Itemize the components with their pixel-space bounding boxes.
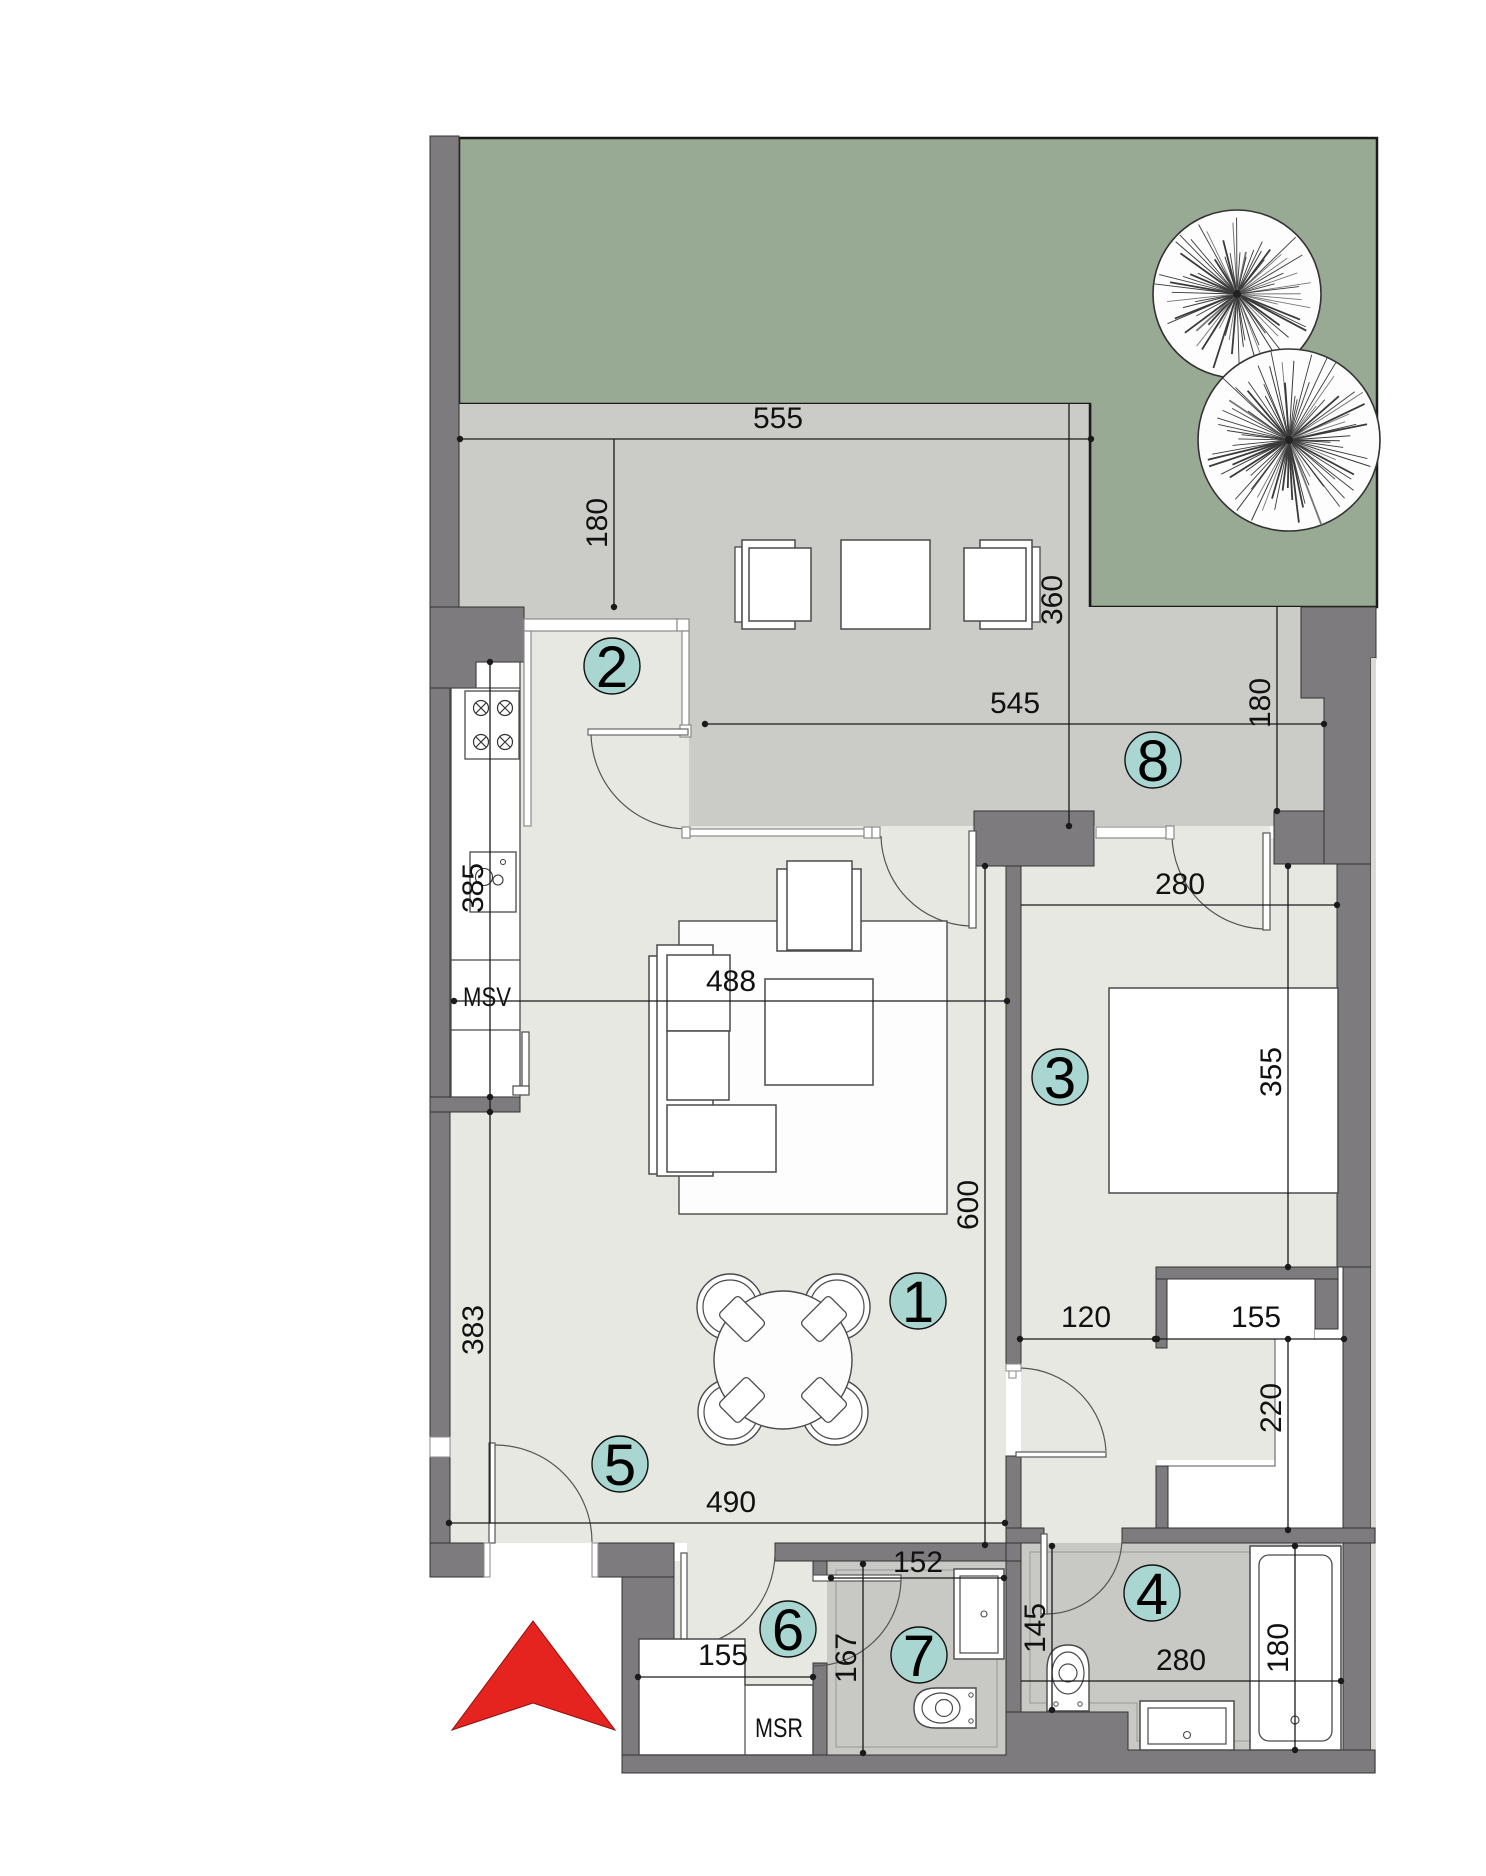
svg-text:145: 145	[1019, 1603, 1052, 1653]
svg-text:280: 280	[1156, 1644, 1206, 1677]
svg-text:2: 2	[596, 635, 628, 700]
svg-text:120: 120	[1061, 1301, 1111, 1334]
svg-text:360: 360	[1036, 575, 1069, 625]
svg-text:385: 385	[457, 863, 490, 913]
svg-text:180: 180	[1244, 678, 1277, 728]
svg-text:180: 180	[1262, 1623, 1295, 1673]
svg-text:5: 5	[604, 1433, 636, 1498]
svg-text:1: 1	[902, 1270, 934, 1335]
svg-text:8: 8	[1137, 729, 1169, 794]
svg-text:355: 355	[1255, 1047, 1288, 1097]
svg-text:7: 7	[903, 1624, 935, 1689]
svg-text:155: 155	[698, 1639, 748, 1672]
svg-text:MSR: MSR	[755, 1713, 803, 1743]
svg-text:6: 6	[772, 1598, 804, 1663]
svg-text:167: 167	[830, 1633, 863, 1683]
svg-text:MSV: MSV	[463, 982, 511, 1012]
svg-text:555: 555	[753, 402, 803, 435]
svg-text:220: 220	[1255, 1383, 1288, 1433]
svg-text:600: 600	[952, 1180, 985, 1230]
svg-text:3: 3	[1044, 1046, 1076, 1111]
svg-text:280: 280	[1155, 868, 1205, 901]
svg-text:490: 490	[706, 1486, 756, 1519]
svg-text:383: 383	[457, 1305, 490, 1355]
svg-text:155: 155	[1231, 1301, 1281, 1334]
svg-text:488: 488	[706, 965, 756, 998]
svg-text:4: 4	[1136, 1562, 1168, 1627]
svg-text:180: 180	[581, 498, 614, 548]
svg-text:545: 545	[990, 687, 1040, 720]
svg-text:152: 152	[893, 1546, 943, 1579]
